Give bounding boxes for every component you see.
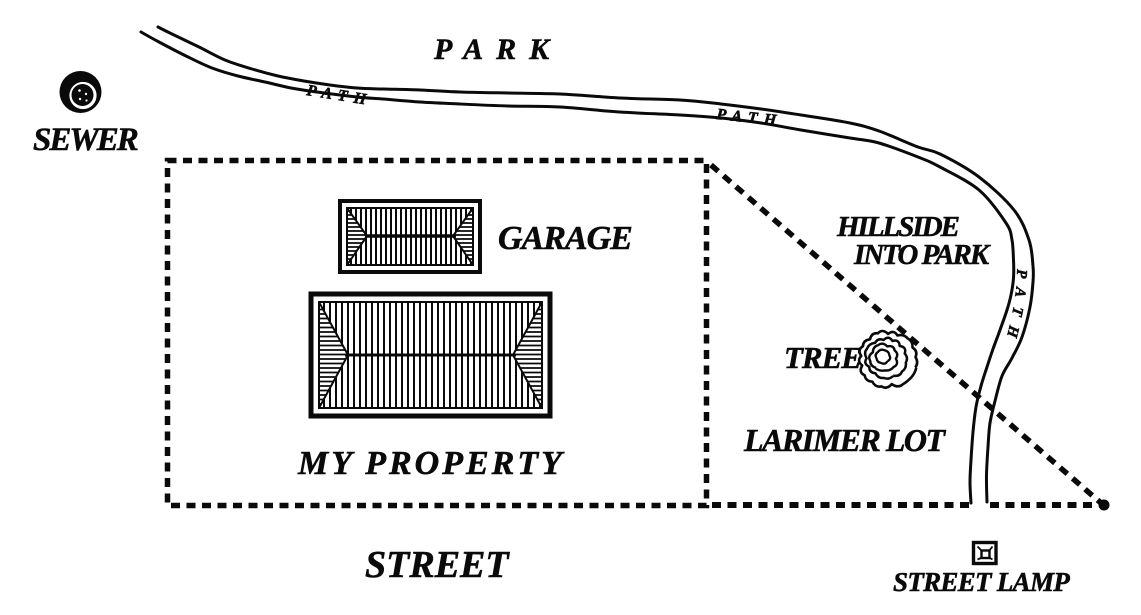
- svg-text:LARIMER LOT: LARIMER LOT: [743, 422, 946, 458]
- svg-text:GARAGE: GARAGE: [498, 220, 632, 257]
- svg-text:SEWER: SEWER: [33, 122, 138, 158]
- svg-text:PARK: PARK: [433, 33, 562, 66]
- svg-text:INTO PARK: INTO PARK: [853, 239, 991, 271]
- svg-text:STREET: STREET: [365, 544, 510, 586]
- svg-text:MY PROPERTY: MY PROPERTY: [297, 445, 565, 482]
- svg-text:TREE: TREE: [784, 340, 861, 375]
- svg-text:STREET LAMP: STREET LAMP: [893, 567, 1070, 597]
